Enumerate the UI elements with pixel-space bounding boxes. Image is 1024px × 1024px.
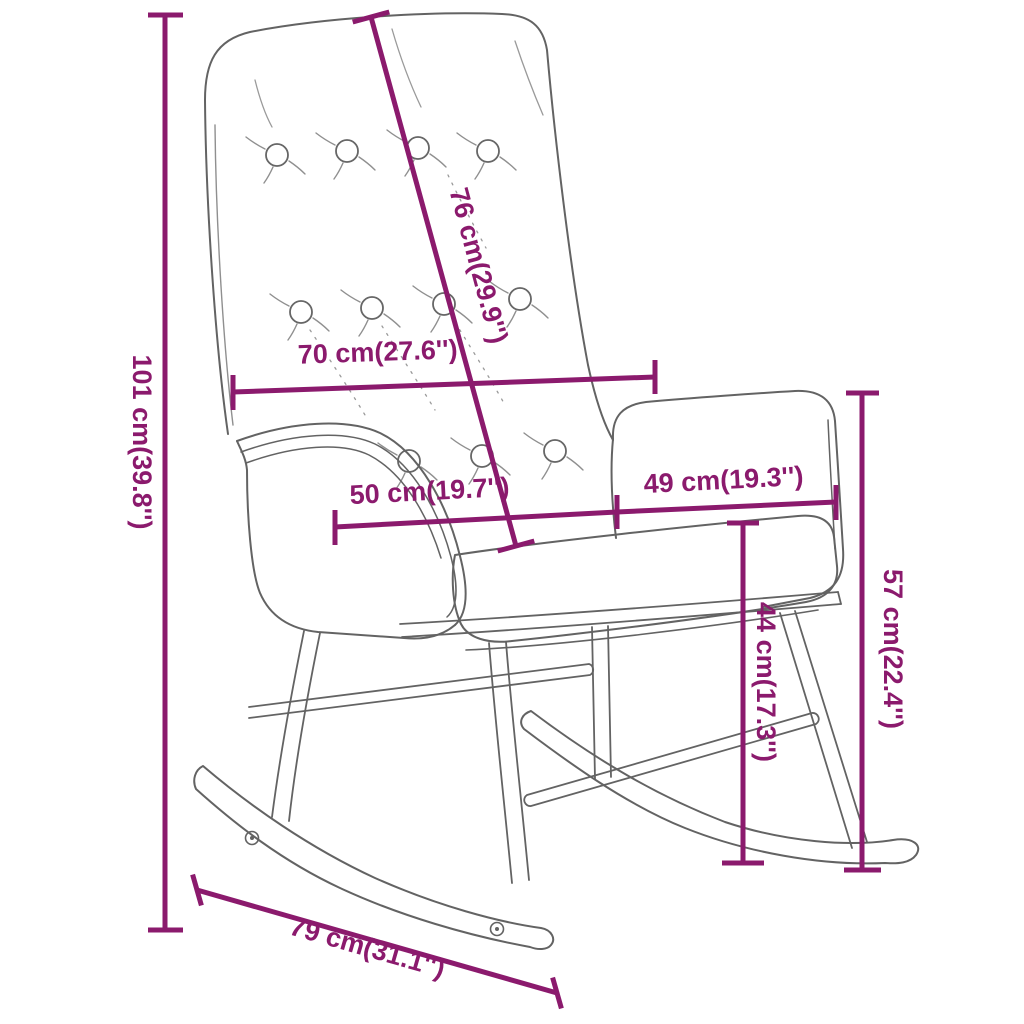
tuft-button xyxy=(270,294,329,340)
dimension-backrest-diagonal xyxy=(353,12,535,551)
rear-left-leg xyxy=(272,631,304,817)
backrest-outline xyxy=(205,13,613,440)
label-rocker-length: 79 cm(31.1'') xyxy=(286,911,448,984)
tuft-button xyxy=(524,433,583,479)
label-armrest-width: 49 cm(19.3'') xyxy=(643,461,804,499)
dimension-diagram: 101 cm(39.8'') 76 cm(29.9'') 70 cm(27.6'… xyxy=(0,0,1024,1024)
rocker-screw xyxy=(250,836,254,840)
rocking-chair-diagram: 101 cm(39.8'') 76 cm(29.9'') 70 cm(27.6'… xyxy=(0,0,1024,1024)
tuft-button xyxy=(246,137,305,183)
chair-line-art xyxy=(194,13,918,949)
tuft-button xyxy=(457,133,516,179)
rear-left-leg xyxy=(289,633,320,821)
label-armrest-height: 57 cm(22.4'') xyxy=(878,569,908,729)
label-total-height: 101 cm(39.8'') xyxy=(127,355,157,530)
front-right-leg xyxy=(608,626,611,777)
dimension-armrest-height xyxy=(844,393,881,870)
left-rocker xyxy=(194,766,553,949)
dimension-annotations xyxy=(148,12,881,1008)
tuft-button xyxy=(316,133,375,179)
label-seat-height: 44 cm(17.3'') xyxy=(751,602,781,762)
front-left-leg xyxy=(506,642,529,880)
tuft-button xyxy=(341,290,400,336)
label-backrest-width: 70 cm(27.6'') xyxy=(297,334,458,370)
label-seat-width: 50 cm(19.7'') xyxy=(349,472,510,510)
tuft-button xyxy=(387,130,446,176)
left-armrest xyxy=(237,424,466,639)
rocker-screw xyxy=(495,927,499,931)
stretcher-bars xyxy=(249,664,819,806)
right-rocker xyxy=(521,711,918,863)
front-stretcher xyxy=(249,664,593,718)
tuft-button xyxy=(413,286,472,332)
